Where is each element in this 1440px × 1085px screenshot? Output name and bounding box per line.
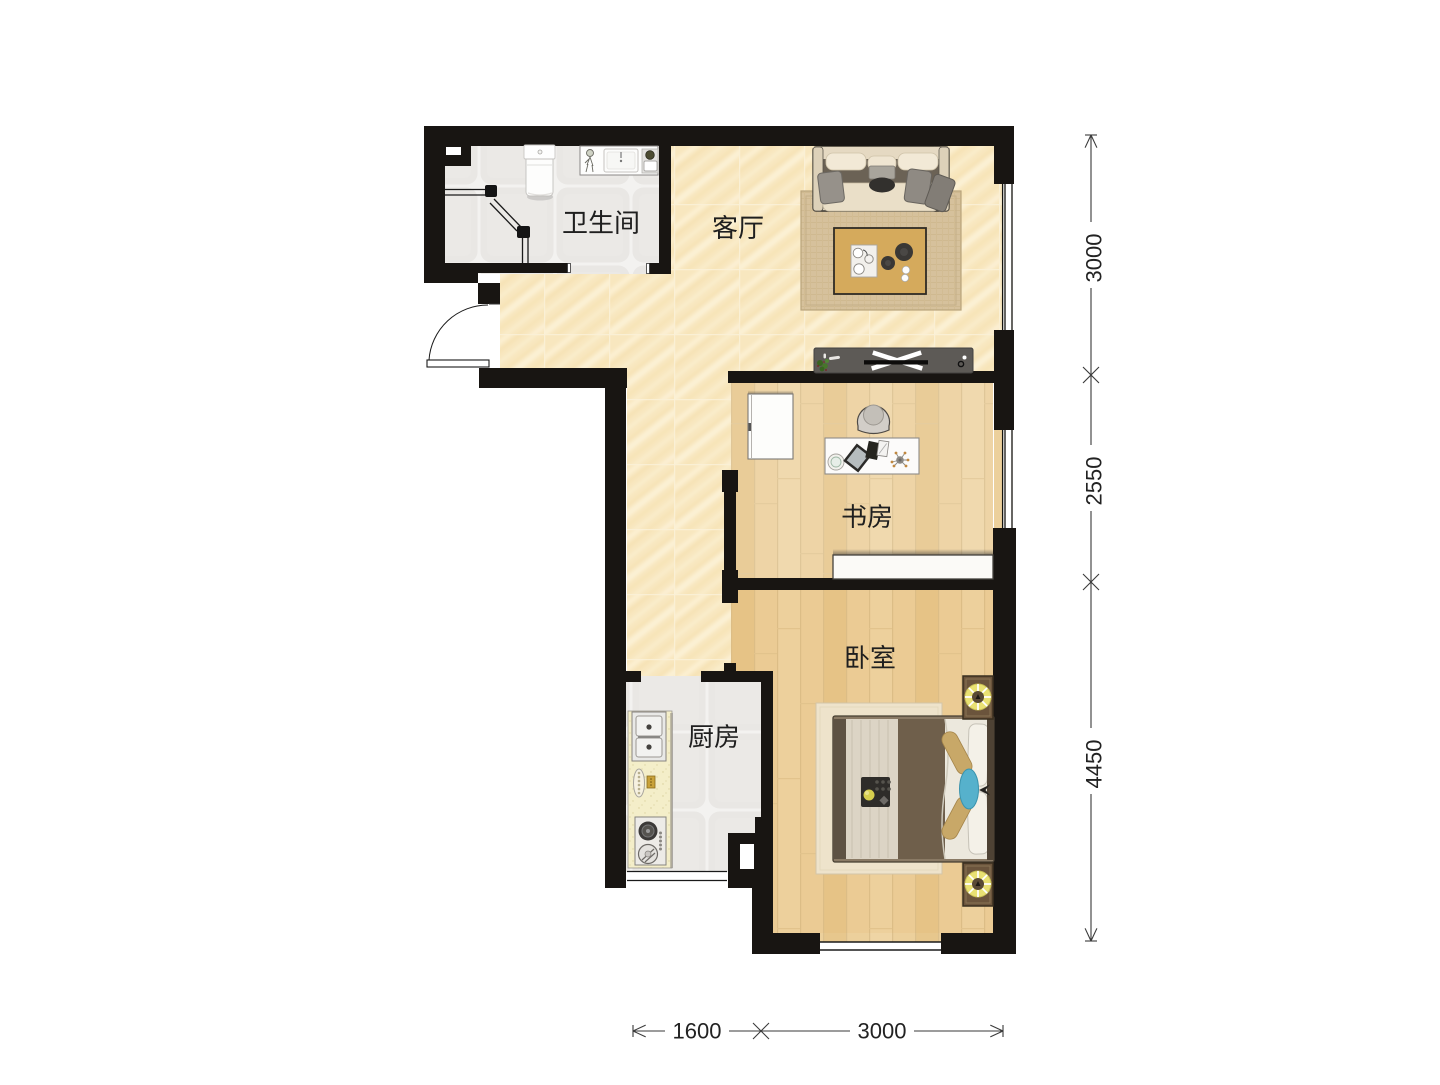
svg-text:3000: 3000 <box>1082 234 1107 283</box>
svg-text:4450: 4450 <box>1082 740 1107 789</box>
svg-text:3000: 3000 <box>858 1019 907 1044</box>
svg-text:1600: 1600 <box>673 1019 722 1044</box>
svg-text:2550: 2550 <box>1082 457 1107 506</box>
